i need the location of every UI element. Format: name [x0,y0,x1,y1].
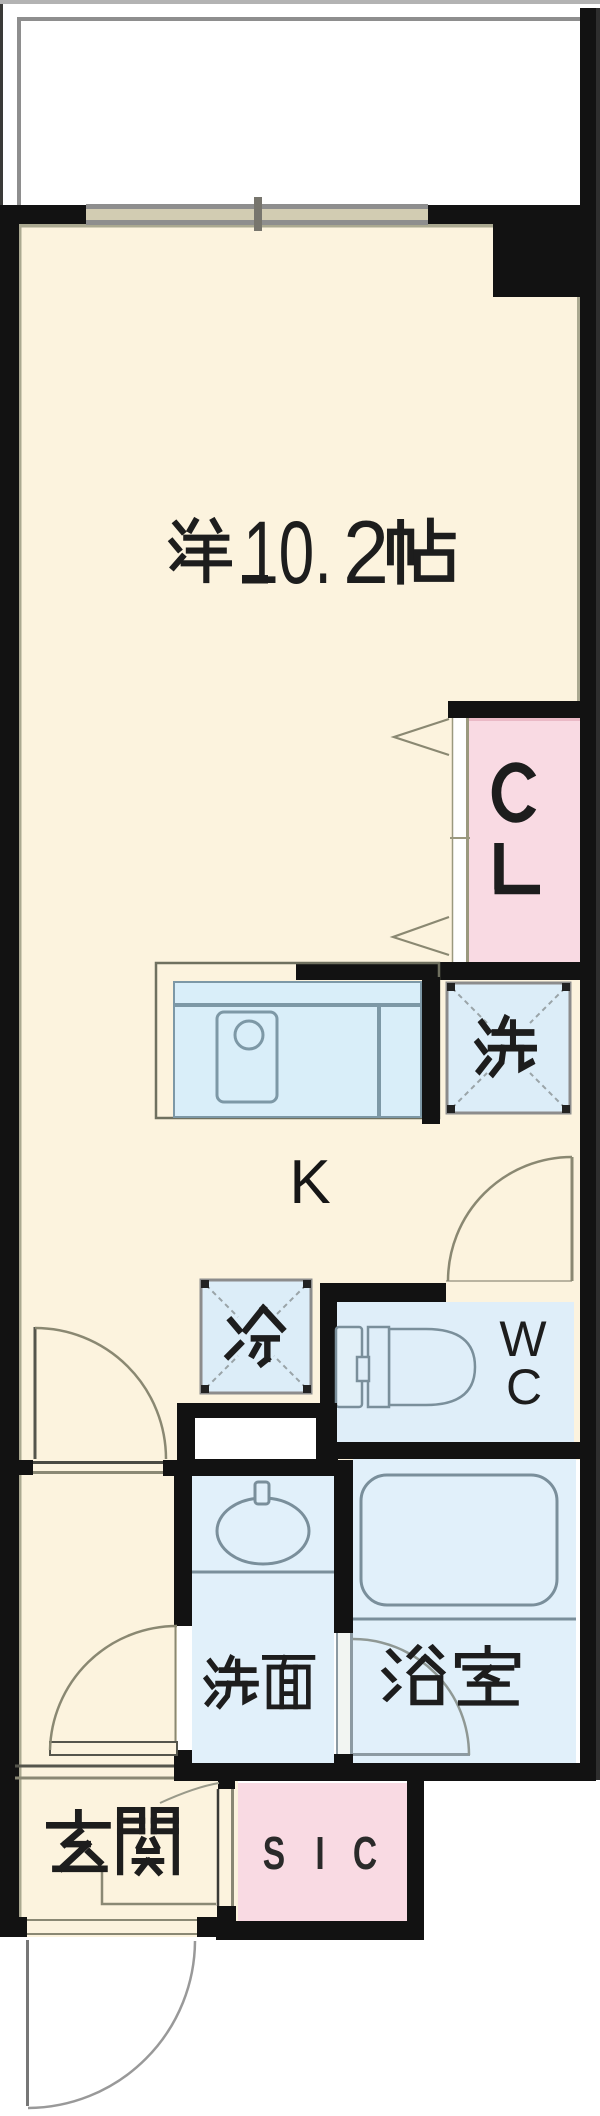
svg-text:C: C [506,1359,542,1415]
svg-text:10.: 10. [243,502,332,602]
svg-text:I: I [315,1828,324,1879]
svg-text:2: 2 [343,502,389,602]
svg-text:S: S [263,1828,285,1879]
svg-text:C: C [353,1828,377,1879]
svg-text:K: K [289,1148,330,1217]
